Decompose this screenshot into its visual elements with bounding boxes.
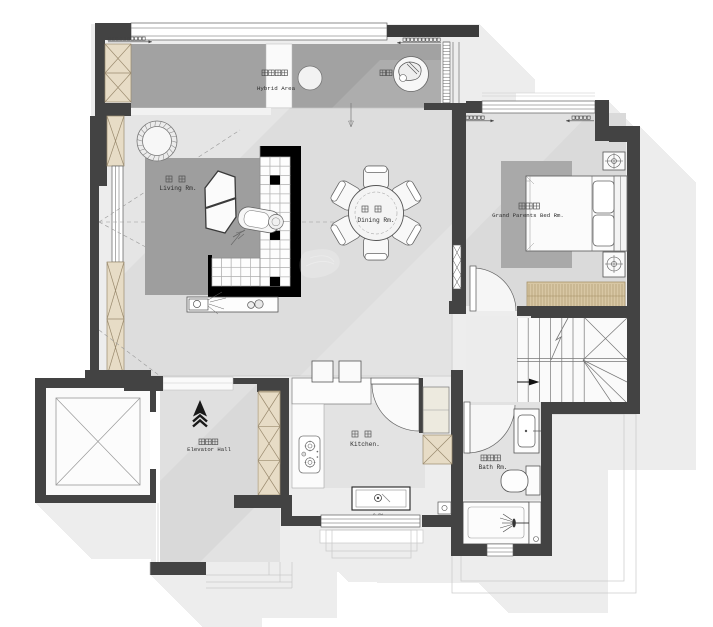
svg-text:Hybrid Area: Hybrid Area (257, 85, 296, 92)
svg-text:Dining Rm.: Dining Rm. (357, 217, 394, 224)
svg-text:Bath Rm.: Bath Rm. (479, 464, 508, 471)
svg-text:Living Rm.: Living Rm. (159, 185, 196, 192)
svg-text:Kitchen.: Kitchen. (350, 441, 380, 448)
svg-text:Grand Parents Bed Rm.: Grand Parents Bed Rm. (492, 212, 564, 219)
svg-text:Elevator Hall: Elevator Hall (187, 446, 231, 453)
